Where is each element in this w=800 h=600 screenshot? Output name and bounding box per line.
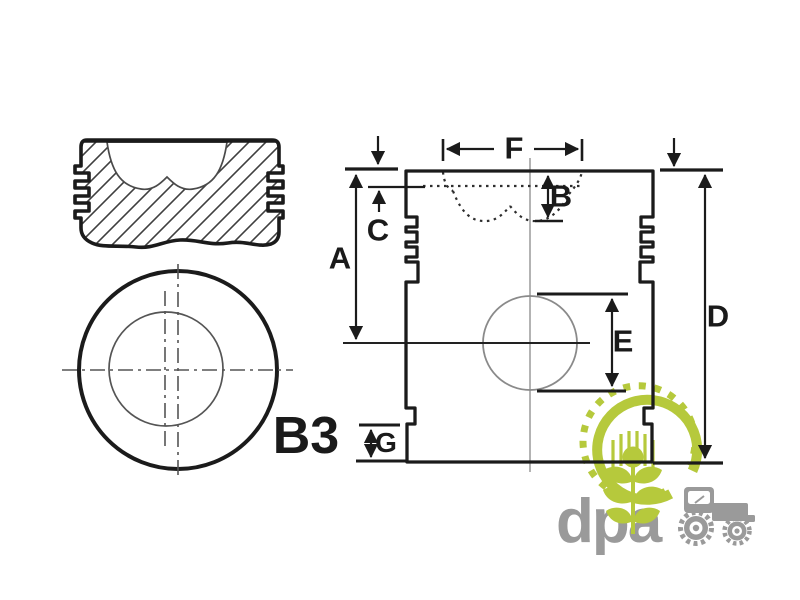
part-code-label: B3 <box>273 410 339 462</box>
dimension-label-c: C <box>367 215 389 246</box>
bowl-circle <box>109 312 223 426</box>
dimension-label-d: D <box>707 301 729 332</box>
piston-top-view <box>62 264 293 477</box>
centerlines <box>62 264 293 477</box>
dimension-label-a: A <box>329 243 351 274</box>
piston-side-view <box>343 136 723 472</box>
piston-diagram-page: dpa <box>0 0 800 600</box>
tractor-icon <box>681 487 756 544</box>
dimension-label-b: B <box>550 181 572 212</box>
brand-logo: dpa <box>556 386 755 556</box>
dimension-lines <box>345 136 723 463</box>
diagram-canvas: dpa <box>0 0 800 600</box>
dimension-label-g: G <box>375 429 397 457</box>
piston-section-view <box>75 140 283 247</box>
dimension-label-e: E <box>613 326 634 357</box>
dimension-label-f: F <box>505 133 524 164</box>
